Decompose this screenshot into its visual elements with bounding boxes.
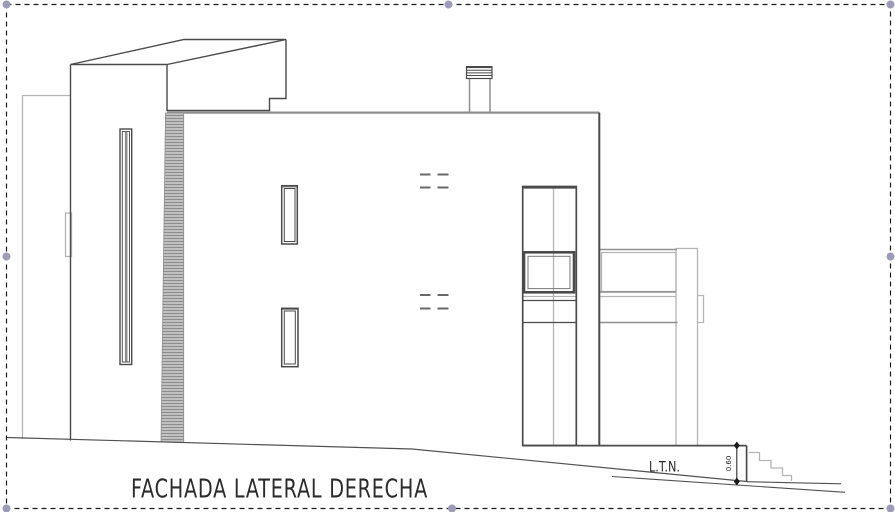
selection-handle[interactable] [3,253,11,261]
selection-handle[interactable] [3,505,11,512]
stair-tower-window [524,252,574,292]
elevation-canvas: 0.60 L.T.N. FACHADA LATERAL DERECHA [0,0,895,512]
dark-linework [7,40,845,493]
dimension-arrow-top [734,442,740,450]
selection-frame[interactable] [3,1,895,512]
selection-handle[interactable] [887,1,895,9]
selection-handle[interactable] [445,1,453,9]
selection-handle[interactable] [887,253,895,261]
chimney-cap [466,67,493,79]
lower-window [282,308,298,366]
dimension-value: 0.60 [725,456,733,472]
roof-box [71,40,287,111]
pillar-notch [698,296,704,323]
medium-linework [126,79,677,363]
selection-handle[interactable] [448,505,456,512]
selection-handle[interactable] [887,505,895,512]
terrain-line-lower [612,477,845,493]
terrain-label: L.T.N. [649,460,680,476]
light-linework [23,96,792,482]
upper-window [282,186,298,244]
left-annex [23,96,71,440]
selection-handle[interactable] [3,1,11,9]
selection-border[interactable] [7,5,891,509]
vent-marks [420,175,449,309]
hatched-wall [161,113,184,443]
corner-pillar [676,249,698,446]
chimney-stack [470,79,491,112]
height-dimension: 0.60 [725,442,740,486]
balcony-railing [602,253,677,292]
stair-tower [522,187,577,446]
perimeter-stairs [749,453,792,482]
drawing-title: FACHADA LATERAL DERECHA [131,475,428,505]
selected-drawing-object[interactable]: 0.60 L.T.N. FACHADA LATERAL DERECHA [0,0,895,512]
